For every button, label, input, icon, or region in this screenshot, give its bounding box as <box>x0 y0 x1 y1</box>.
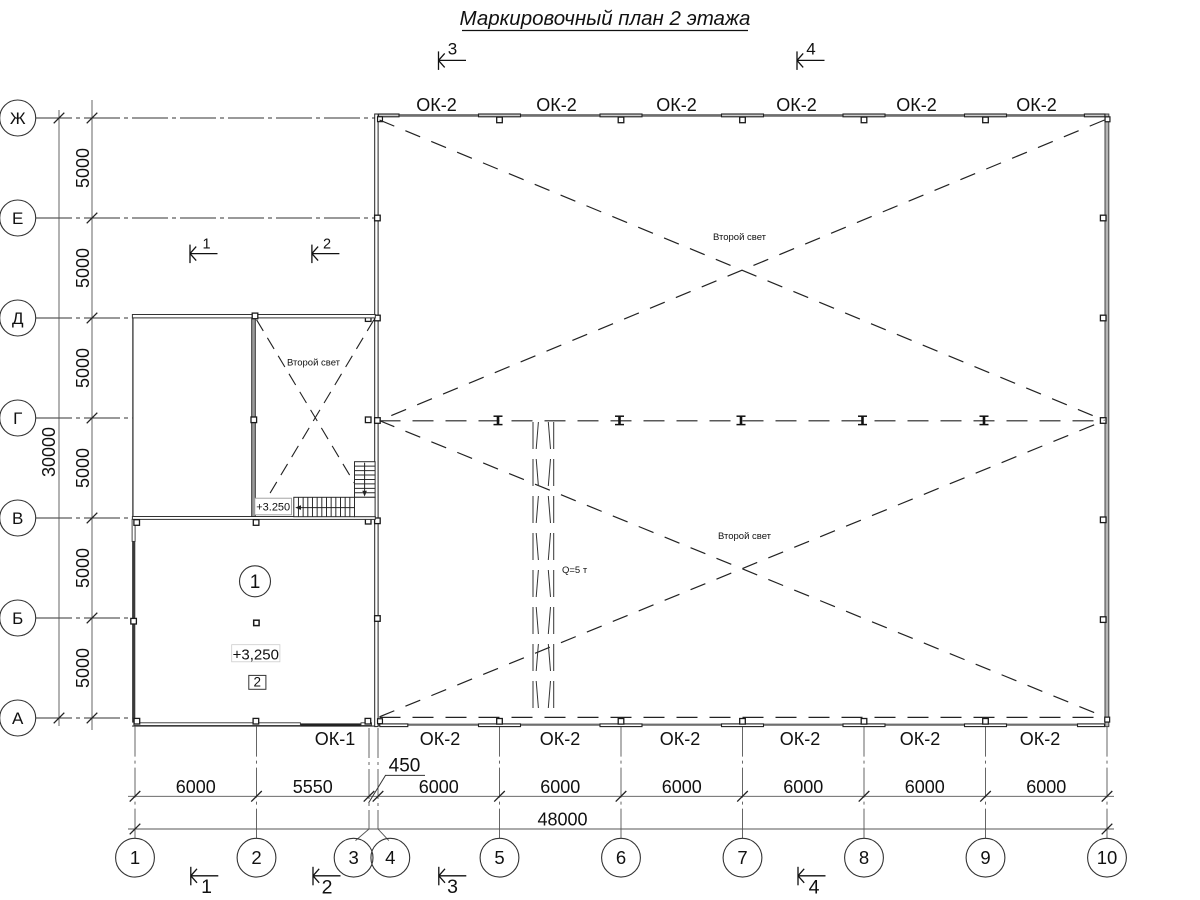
svg-text:4: 4 <box>809 877 820 899</box>
svg-text:1: 1 <box>202 237 210 253</box>
svg-text:Второй свет: Второй свет <box>718 531 772 542</box>
svg-text:450: 450 <box>389 755 421 776</box>
svg-text:5000: 5000 <box>73 148 93 188</box>
svg-text:5000: 5000 <box>73 448 93 488</box>
svg-text:2: 2 <box>254 675 262 690</box>
svg-text:ОК-2: ОК-2 <box>1020 729 1061 749</box>
svg-text:5000: 5000 <box>73 648 93 688</box>
svg-text:Маркировочный план 2 этажа: Маркировочный план 2 этажа <box>460 7 751 30</box>
svg-text:ОК-2: ОК-2 <box>900 729 941 749</box>
svg-text:6: 6 <box>616 847 626 868</box>
svg-text:5: 5 <box>494 847 504 868</box>
svg-text:6000: 6000 <box>905 777 945 797</box>
svg-text:5550: 5550 <box>293 777 333 797</box>
svg-text:ОК-2: ОК-2 <box>656 95 697 115</box>
svg-text:2: 2 <box>251 847 261 868</box>
svg-text:1: 1 <box>130 847 140 868</box>
svg-text:ОК-2: ОК-2 <box>420 729 461 749</box>
svg-text:2: 2 <box>323 237 331 253</box>
svg-text:Г: Г <box>13 409 22 428</box>
svg-text:6000: 6000 <box>540 777 580 797</box>
svg-text:ОК-2: ОК-2 <box>896 95 937 115</box>
svg-text:+3.250: +3.250 <box>256 502 290 514</box>
svg-text:1: 1 <box>201 876 212 898</box>
svg-text:5000: 5000 <box>73 548 93 588</box>
svg-text:3: 3 <box>448 40 457 59</box>
svg-text:5000: 5000 <box>73 248 93 288</box>
svg-text:Д: Д <box>12 309 24 328</box>
svg-text:А: А <box>12 709 24 728</box>
svg-text:9: 9 <box>980 847 990 868</box>
svg-text:Е: Е <box>12 209 23 228</box>
svg-text:Q=5 т: Q=5 т <box>562 565 588 576</box>
svg-text:2: 2 <box>322 877 333 899</box>
svg-text:ОК-2: ОК-2 <box>416 95 457 115</box>
svg-text:6000: 6000 <box>419 777 459 797</box>
svg-text:48000: 48000 <box>537 810 587 830</box>
svg-text:6000: 6000 <box>783 777 823 797</box>
svg-text:В: В <box>12 509 23 528</box>
svg-text:ОК-2: ОК-2 <box>780 729 821 749</box>
svg-text:ОК-2: ОК-2 <box>660 729 701 749</box>
svg-text:6000: 6000 <box>1026 777 1066 797</box>
svg-text:6000: 6000 <box>176 777 216 797</box>
svg-text:3: 3 <box>348 847 358 868</box>
svg-text:4: 4 <box>385 847 395 868</box>
svg-text:Ж: Ж <box>10 109 26 128</box>
svg-text:3: 3 <box>447 876 458 898</box>
svg-text:ОК-1: ОК-1 <box>315 729 356 749</box>
svg-text:1: 1 <box>250 572 261 593</box>
svg-text:Б: Б <box>12 609 23 628</box>
svg-text:+3,250: +3,250 <box>233 646 279 663</box>
svg-text:4: 4 <box>806 40 815 59</box>
svg-text:ОК-2: ОК-2 <box>776 95 817 115</box>
svg-text:ОК-2: ОК-2 <box>1016 95 1057 115</box>
svg-text:30000: 30000 <box>39 427 59 477</box>
svg-text:ОК-2: ОК-2 <box>540 729 581 749</box>
svg-text:7: 7 <box>737 847 747 868</box>
svg-text:Второй свет: Второй свет <box>287 358 341 369</box>
svg-text:ОК-2: ОК-2 <box>536 95 577 115</box>
svg-text:6000: 6000 <box>662 777 702 797</box>
svg-text:Второй свет: Второй свет <box>713 232 767 243</box>
svg-text:8: 8 <box>859 847 869 868</box>
svg-text:10: 10 <box>1097 847 1118 868</box>
svg-text:5000: 5000 <box>73 348 93 388</box>
